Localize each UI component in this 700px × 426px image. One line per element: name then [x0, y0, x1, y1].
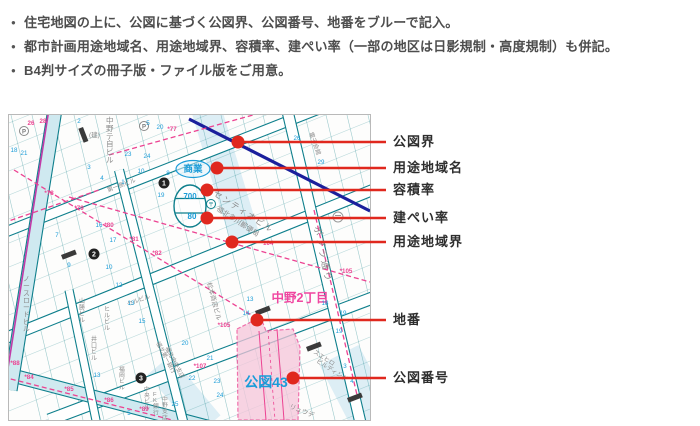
- svg-text:5: 5: [127, 410, 131, 417]
- svg-text:15: 15: [139, 318, 146, 325]
- svg-text:26: 26: [28, 120, 35, 127]
- svg-text:(建): (建): [89, 130, 100, 139]
- svg-text:*86: *86: [104, 397, 114, 404]
- bullet-text: 住宅地図の上に、公図に基づく公図界、公図番号、地番をブルーで記入。: [24, 11, 458, 35]
- svg-text:9: 9: [67, 262, 71, 269]
- svg-text:*105: *105: [218, 322, 231, 329]
- bullet-item: ● B4判サイズの冊子版・ファイル版をご用意。: [11, 59, 618, 83]
- bullet-item: ● 都市計画用途地域名、用途地域界、容積率、建ぺい率（一部の地区は日影規制・高度…: [11, 35, 618, 59]
- svg-text:23: 23: [125, 151, 132, 158]
- svg-text:*82: *82: [152, 250, 162, 257]
- svg-text:*88: *88: [10, 360, 20, 367]
- svg-text:*78: *78: [44, 190, 54, 197]
- svg-text:*85: *85: [64, 386, 74, 393]
- callout-label-koizukai: 公図界: [393, 134, 435, 150]
- svg-text:2: 2: [77, 118, 81, 125]
- svg-text:*81: *81: [129, 236, 139, 243]
- svg-text:10: 10: [138, 168, 145, 175]
- svg-text:*107: *107: [194, 363, 207, 370]
- bullet-text: B4判サイズの冊子版・ファイル版をご用意。: [24, 59, 291, 83]
- svg-text:7: 7: [55, 232, 59, 239]
- svg-text:14: 14: [243, 310, 250, 317]
- svg-text:*105: *105: [340, 268, 353, 275]
- svg-text:*79: *79: [74, 205, 84, 212]
- callout-label-yoto-chiiki-mei: 用途地域名: [393, 160, 463, 176]
- svg-text:20: 20: [182, 340, 189, 347]
- bullet-icon: ●: [11, 11, 16, 35]
- callout-label-koizu-bango: 公図番号: [393, 370, 449, 386]
- svg-text:13: 13: [94, 372, 101, 379]
- svg-text:2: 2: [92, 252, 96, 259]
- svg-text:山勝ビル: 山勝ビル: [79, 297, 85, 324]
- svg-text:4: 4: [350, 378, 354, 385]
- svg-text:8: 8: [166, 170, 170, 177]
- svg-text:28: 28: [40, 118, 47, 125]
- svg-text:4: 4: [100, 175, 104, 182]
- svg-text:16: 16: [96, 222, 103, 229]
- svg-text:3: 3: [87, 164, 91, 171]
- svg-text:井口ビル: 井口ビル: [91, 335, 97, 362]
- bullet-text: 都市計画用途地域名、用途地域界、容積率、建ぺい率（一部の地区は日影規制・高度規制…: [24, 35, 618, 59]
- svg-text:700: 700: [183, 192, 197, 201]
- svg-text:29: 29: [318, 159, 325, 166]
- svg-text:〒: 〒: [208, 201, 214, 208]
- svg-text:18: 18: [322, 300, 329, 307]
- svg-text:*80: *80: [104, 222, 114, 229]
- svg-text:5: 5: [146, 120, 150, 127]
- svg-text:17: 17: [110, 237, 117, 244]
- svg-text:10: 10: [106, 264, 113, 271]
- svg-text:21: 21: [21, 150, 28, 157]
- cadastral-map-graphic: PP〒センティオビル福北多川郵便局中野テ自ビル(建)第一側ビル松本商店ビルポプラ…: [9, 115, 370, 420]
- svg-text:25: 25: [172, 401, 179, 408]
- svg-text:*77: *77: [167, 126, 177, 133]
- svg-text:26: 26: [294, 135, 301, 142]
- svg-text:18: 18: [11, 147, 18, 154]
- callout-label-yoto-chiiki-kai: 用途地域界: [393, 234, 463, 250]
- svg-text:13: 13: [247, 296, 254, 303]
- callout-label-kenpeiritsu: 建ぺい率: [393, 210, 449, 226]
- bullet-icon: ●: [11, 59, 16, 83]
- svg-text:21: 21: [207, 355, 214, 362]
- svg-text:中野テ自ビル: 中野テ自ビル: [106, 115, 114, 164]
- svg-text:24: 24: [144, 153, 151, 160]
- svg-text:福岡ビル: 福岡ビル: [119, 365, 125, 391]
- svg-text:19: 19: [336, 328, 343, 335]
- svg-text:*89: *89: [139, 406, 149, 413]
- callout-label-yosekiritsu: 容積率: [393, 182, 435, 198]
- svg-text:13: 13: [128, 300, 135, 307]
- svg-text:P: P: [22, 129, 26, 135]
- svg-text:3: 3: [343, 363, 347, 370]
- svg-text:22: 22: [189, 375, 196, 382]
- svg-text:中野2丁目: 中野2丁目: [272, 290, 329, 305]
- svg-text:中野支店: 中野支店: [162, 395, 168, 420]
- svg-text:商業: 商業: [183, 163, 203, 175]
- svg-text:*104: *104: [261, 240, 274, 247]
- svg-text:19: 19: [158, 192, 165, 199]
- svg-text:ヒルビル: ヒルビル: [104, 306, 110, 332]
- svg-text:12: 12: [116, 282, 123, 289]
- svg-text:80: 80: [188, 212, 197, 221]
- svg-text:20: 20: [157, 124, 164, 131]
- svg-text:*84: *84: [24, 374, 34, 381]
- svg-text:1: 1: [162, 181, 166, 188]
- bullet-icon: ●: [11, 35, 16, 59]
- svg-text:ノースロードビル: ノースロードビル: [23, 276, 30, 333]
- bullet-item: ● 住宅地図の上に、公図に基づく公図界、公図番号、地番をブルーで記入。: [11, 11, 618, 35]
- feature-bullet-list: ● 住宅地図の上に、公図に基づく公図界、公図番号、地番をブルーで記入。 ● 都市…: [11, 11, 618, 83]
- svg-text:19: 19: [340, 310, 347, 317]
- callout-label-chiban: 地番: [393, 312, 421, 328]
- svg-text:3: 3: [139, 376, 143, 383]
- svg-text:23: 23: [214, 378, 221, 385]
- svg-text:1: 1: [121, 179, 125, 186]
- svg-text:24: 24: [217, 392, 224, 399]
- blue-map-sample-image: PP〒センティオビル福北多川郵便局中野テ自ビル(建)第一側ビル松本商店ビルポプラ…: [8, 114, 371, 421]
- svg-text:公図43: 公図43: [244, 374, 288, 390]
